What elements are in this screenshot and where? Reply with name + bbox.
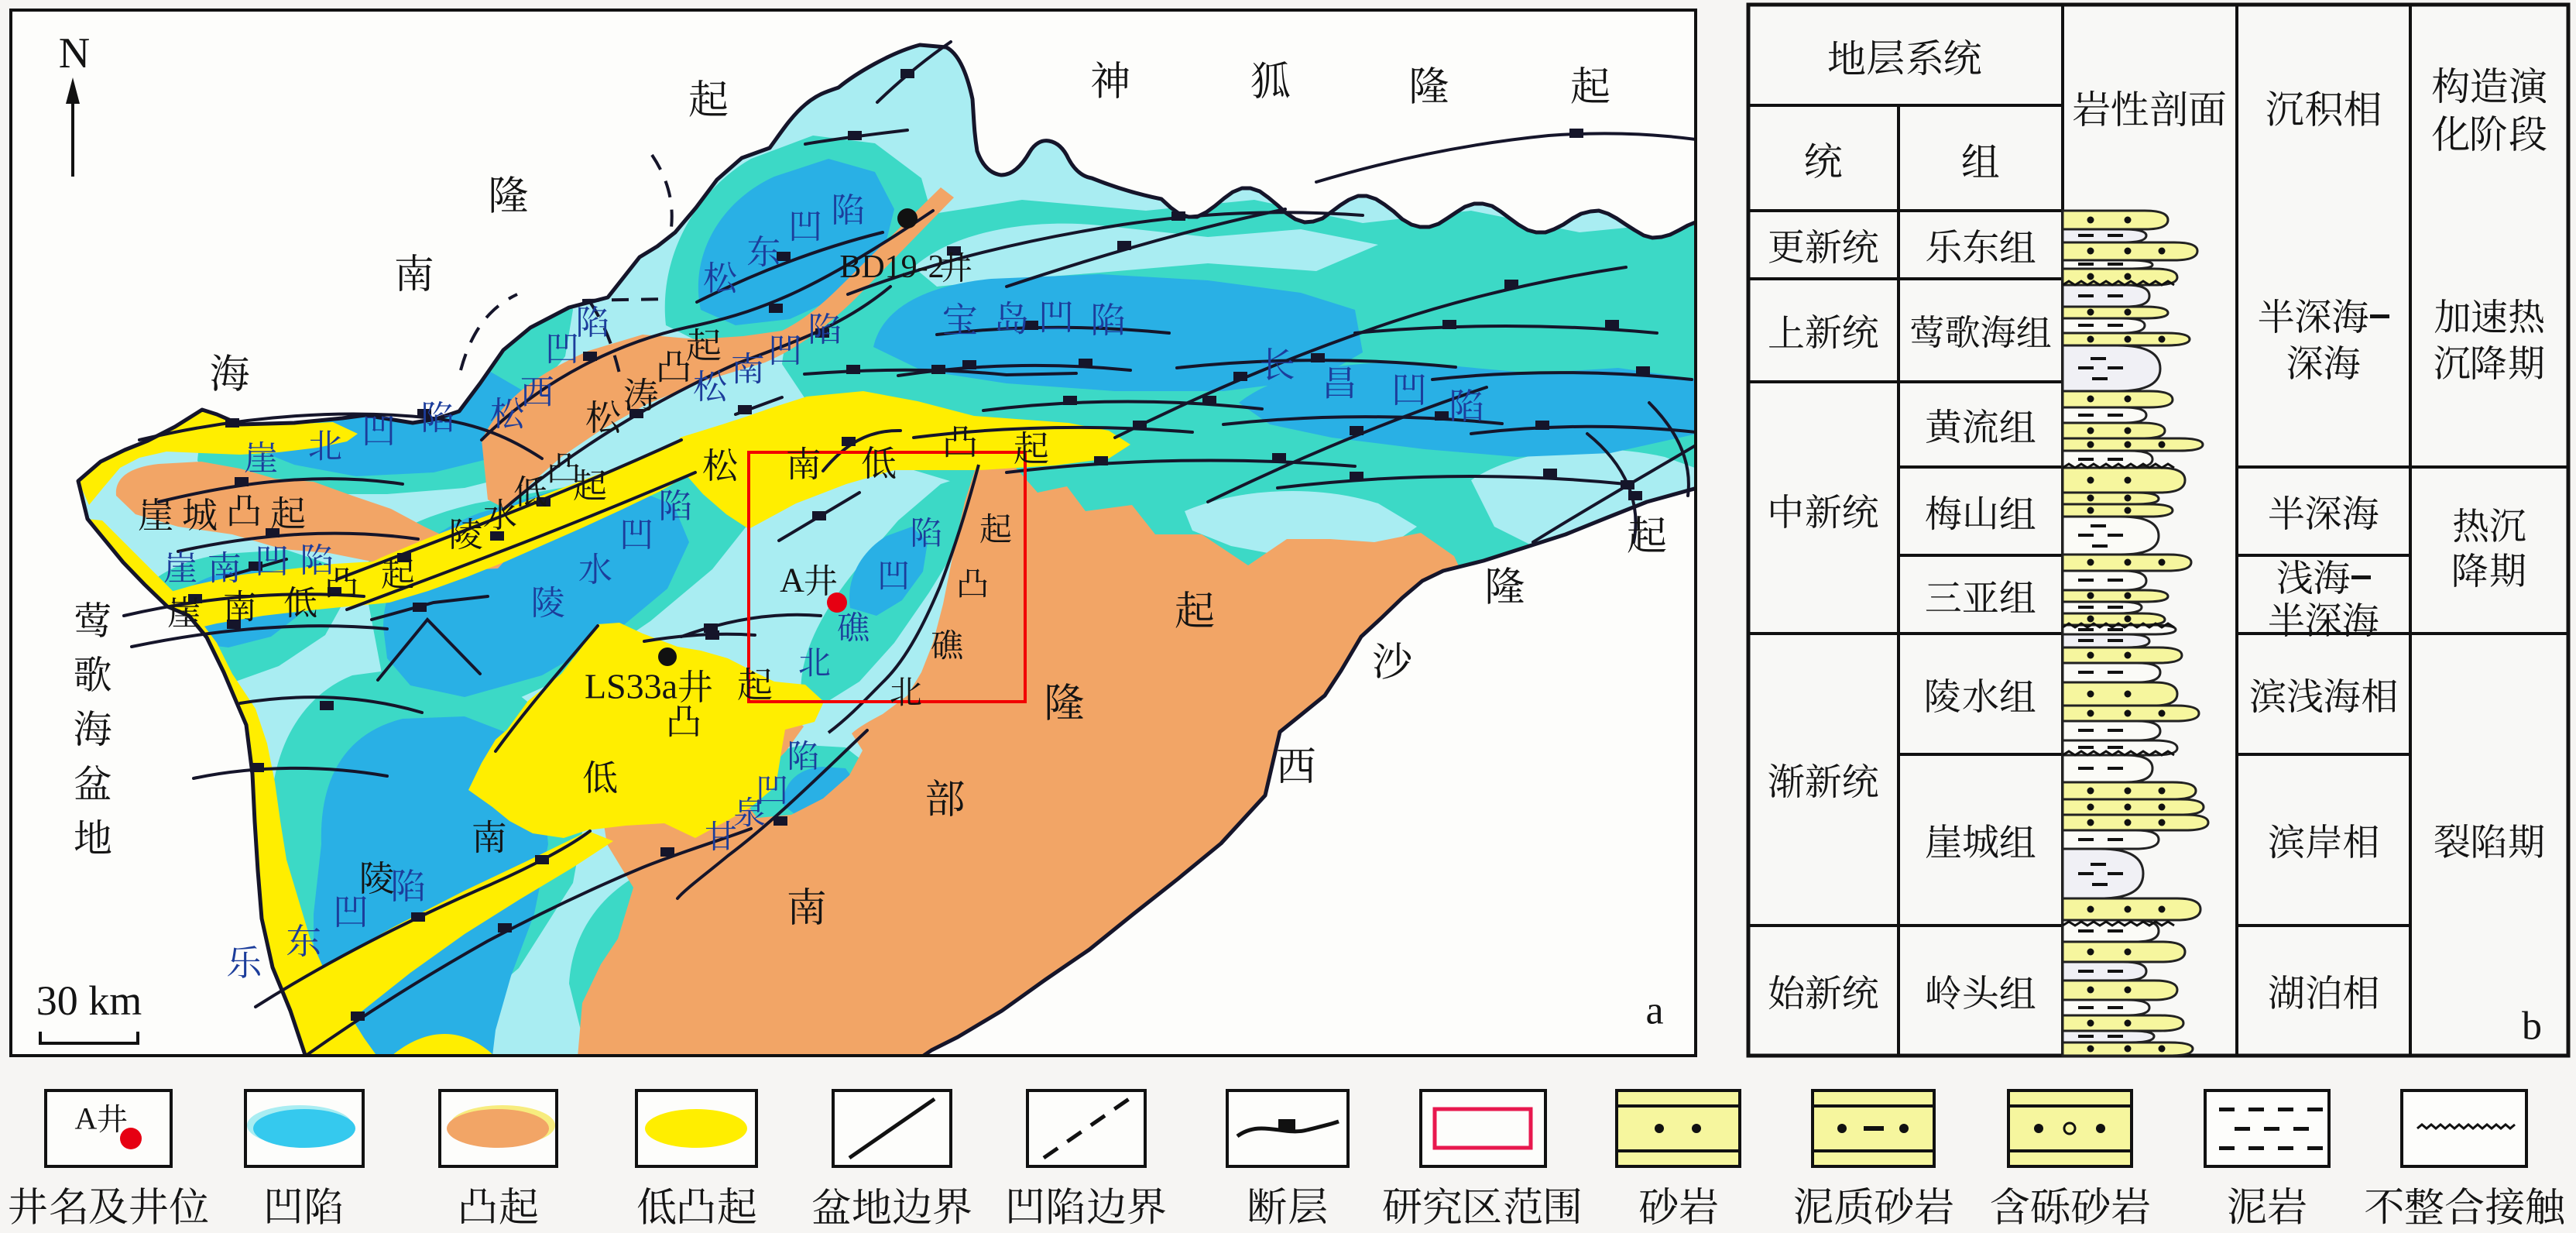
svg-text:A: A <box>780 562 804 599</box>
svg-text:b: b <box>2522 1005 2542 1049</box>
svg-text:a: a <box>1645 989 1663 1033</box>
svg-text:BD19-2: BD19-2 <box>839 249 944 285</box>
svg-text:LS33a: LS33a <box>585 667 677 706</box>
svg-text:30 km: 30 km <box>36 977 142 1024</box>
svg-text:A: A <box>75 1101 98 1136</box>
svg-text:N: N <box>59 29 90 77</box>
